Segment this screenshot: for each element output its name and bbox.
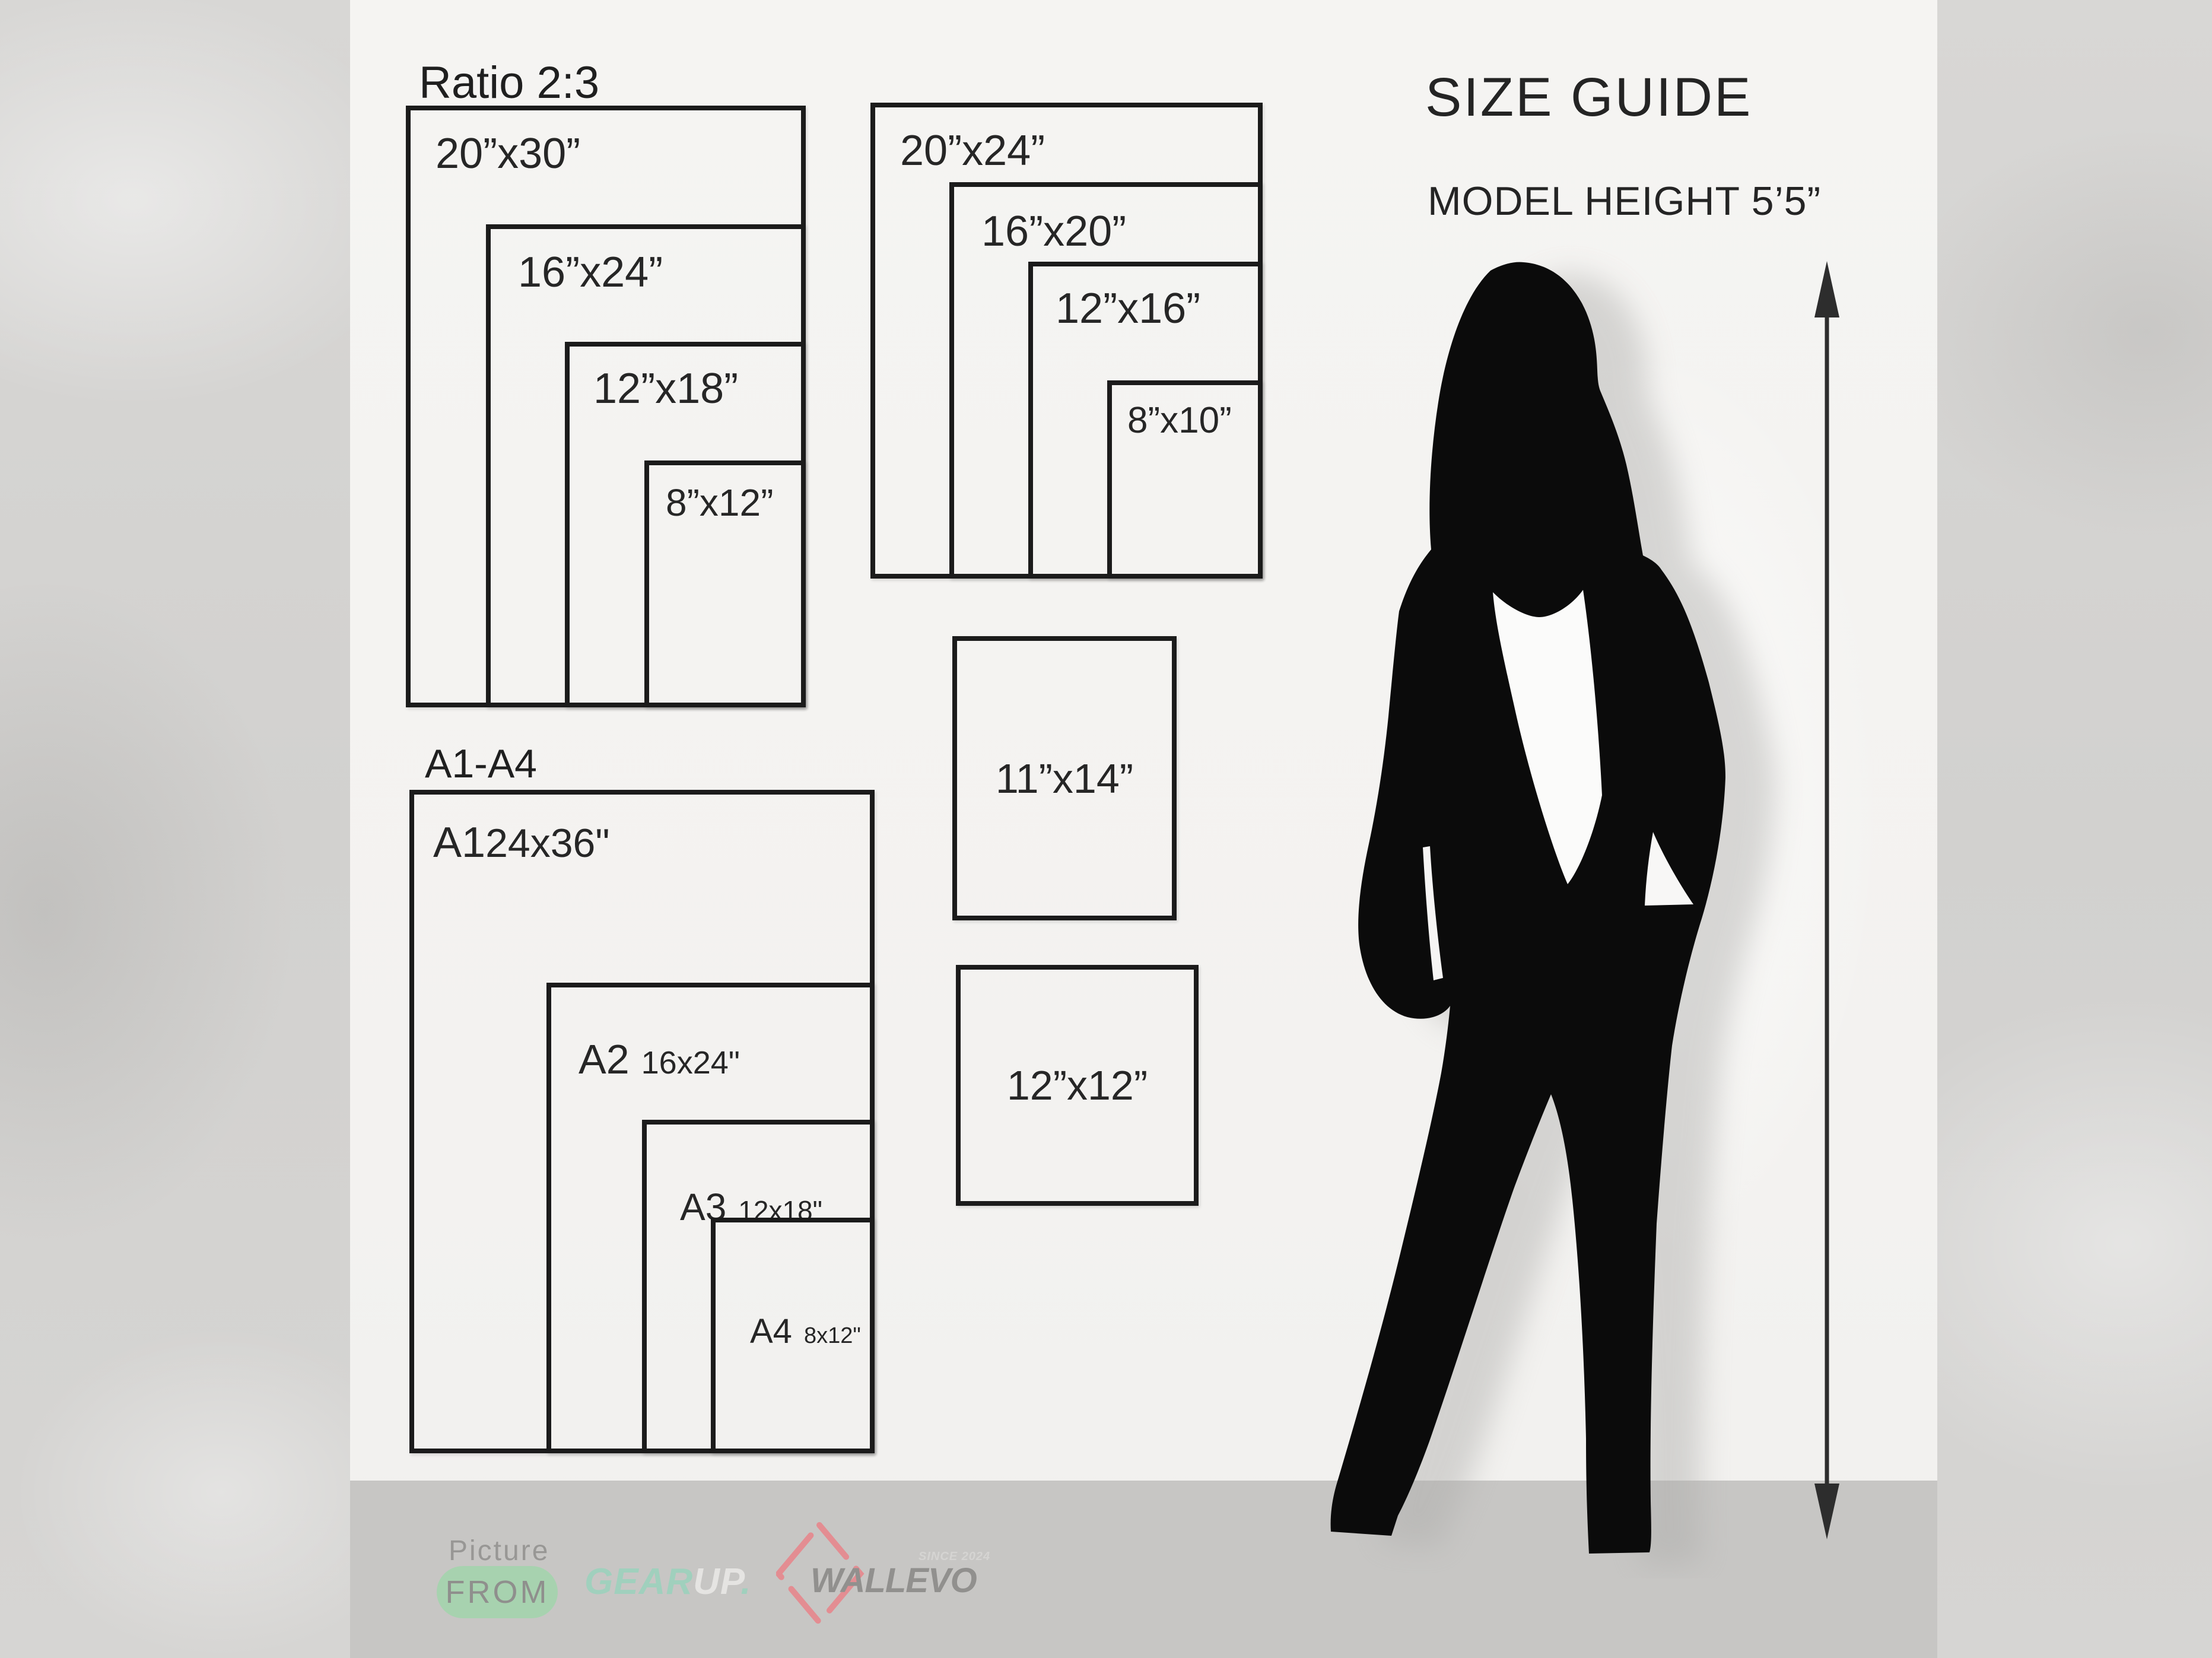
size-rect-12x12: 12”x12” — [956, 965, 1199, 1206]
gearup-gear-text: GEAR — [584, 1561, 693, 1602]
from-label: FROM — [446, 1574, 549, 1611]
a-size-dim: 16x24" — [641, 1045, 740, 1081]
height-measure-arrow — [1786, 252, 1875, 1552]
size-label: 20”x30” — [436, 129, 580, 178]
size-label: 8”x10” — [1127, 399, 1232, 442]
ratio-2-3-heading: Ratio 2:3 — [419, 57, 599, 109]
picture-label: Picture — [449, 1535, 549, 1567]
size-label: 16”x24” — [518, 248, 663, 297]
size-rect-8x12: 8”x12” — [644, 460, 806, 707]
a-size-name: A2 — [579, 1036, 630, 1082]
a-size-name: A1 — [433, 819, 485, 866]
page-title: SIZE GUIDE — [1425, 66, 1752, 129]
model-height-subtitle: MODEL HEIGHT 5’5” — [1428, 178, 1821, 224]
a-size-dim: 24x36" — [485, 821, 609, 866]
size-label: 8”x12” — [666, 481, 773, 525]
size-label: 12”x18” — [593, 364, 738, 413]
size-label: 12”x12” — [1007, 1062, 1148, 1109]
a-size-dim: 8x12" — [804, 1323, 861, 1348]
a-size-name: A4 — [750, 1312, 792, 1351]
size-rect-a4: A4 8x12" — [711, 1218, 875, 1453]
size-rect-11x14: 11”x14” — [952, 636, 1177, 920]
size-label: 16”x20” — [981, 207, 1126, 256]
size-label: 11”x14” — [996, 755, 1133, 802]
size-label: 20”x24” — [900, 126, 1045, 175]
size-label: 12”x16” — [1056, 284, 1200, 333]
gearup-up-text: UP — [693, 1561, 740, 1602]
wallevo-name: WALLEVO — [811, 1561, 977, 1600]
a-series-heading: A1-A4 — [425, 741, 537, 787]
size-rect-8x10: 8”x10” — [1107, 380, 1263, 579]
gearup-dot: . — [740, 1561, 751, 1602]
wallevo-logo: SINCE 2024 WALLEVO — [771, 1519, 973, 1626]
model-silhouette — [1258, 237, 1804, 1578]
gearup-logo: GEARUP. — [584, 1561, 752, 1603]
from-badge: FROM — [437, 1566, 558, 1618]
